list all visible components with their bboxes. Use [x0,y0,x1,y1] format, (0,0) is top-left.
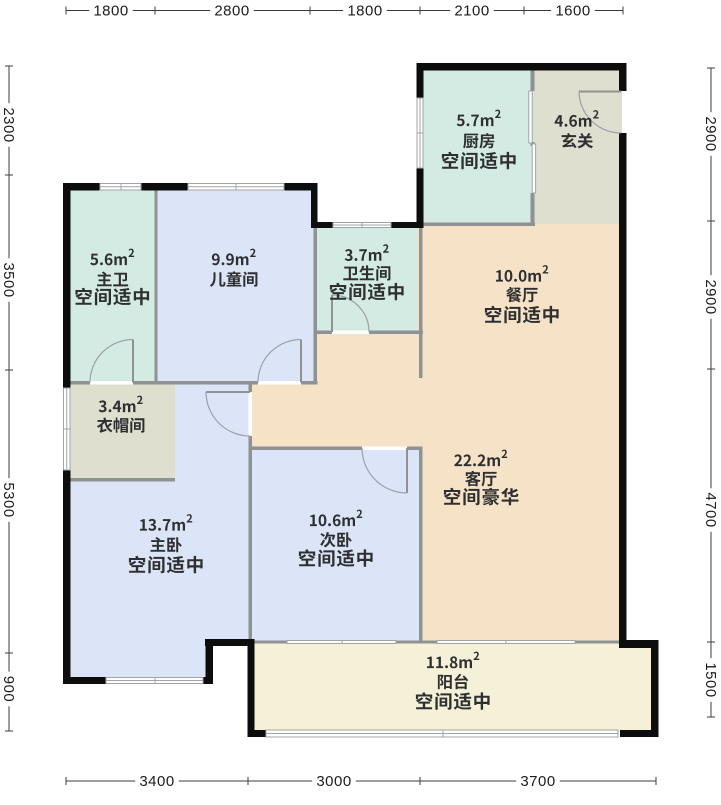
svg-text:1600: 1600 [555,3,590,20]
svg-text:4700: 4700 [702,492,719,527]
svg-text:3400: 3400 [139,773,174,790]
svg-text:3700: 3700 [520,773,555,790]
svg-text:3500: 3500 [0,262,17,297]
svg-text:2900: 2900 [702,279,719,314]
svg-text:1500: 1500 [702,662,719,697]
svg-text:2300: 2300 [0,107,17,142]
svg-text:900: 900 [0,676,17,703]
svg-text:2100: 2100 [454,3,489,20]
svg-text:1800: 1800 [93,3,128,20]
svg-text:1800: 1800 [347,3,382,20]
svg-text:3000: 3000 [316,773,351,790]
svg-text:2900: 2900 [702,116,719,151]
svg-text:5300: 5300 [0,482,17,517]
svg-text:2800: 2800 [214,3,249,20]
